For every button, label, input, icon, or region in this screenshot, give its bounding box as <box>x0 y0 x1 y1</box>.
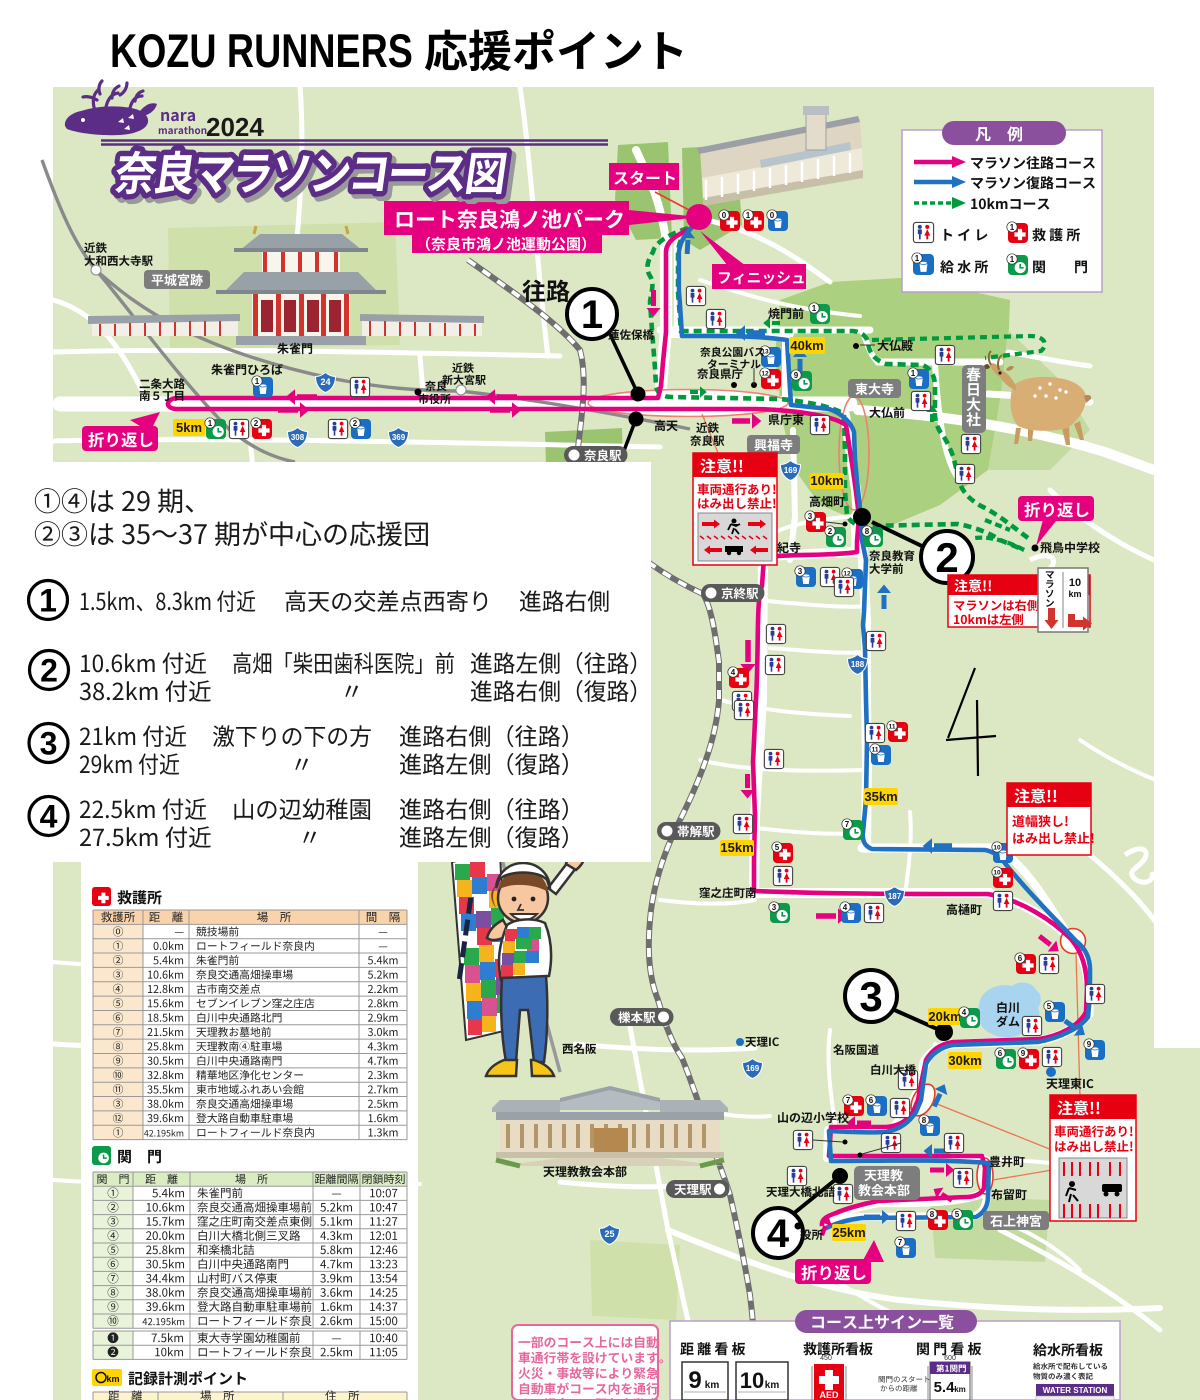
svg-text:10: 10 <box>993 844 1001 851</box>
svg-text:km: km <box>1068 589 1081 599</box>
svg-text:0: 0 <box>722 211 727 220</box>
svg-text:1: 1 <box>1010 223 1015 232</box>
svg-text:1: 1 <box>208 419 213 428</box>
svg-text:20km: 20km <box>928 1009 961 1024</box>
svg-text:25: 25 <box>604 1229 614 1239</box>
svg-text:3: 3 <box>808 512 813 521</box>
svg-text:8: 8 <box>865 527 870 536</box>
svg-text:1: 1 <box>39 582 57 618</box>
svg-text:169: 169 <box>746 1064 760 1073</box>
svg-text:1: 1 <box>581 293 603 337</box>
svg-text:8: 8 <box>930 1210 935 1219</box>
svg-text:2: 2 <box>353 419 358 428</box>
svg-text:km: km <box>106 1374 119 1384</box>
svg-text:2: 2 <box>828 527 833 536</box>
svg-text:9: 9 <box>688 1367 701 1394</box>
svg-text:24: 24 <box>320 377 330 387</box>
svg-text:2024: 2024 <box>206 112 264 142</box>
svg-text:369: 369 <box>392 433 406 442</box>
svg-text:600: 600 <box>944 1355 956 1362</box>
svg-text:4: 4 <box>962 1008 967 1017</box>
svg-text:1: 1 <box>255 377 260 386</box>
svg-text:KOZU RUNNERS: KOZU RUNNERS <box>110 25 413 78</box>
svg-text:5.4: 5.4 <box>934 1379 956 1396</box>
svg-text:10km: 10km <box>810 473 843 488</box>
svg-text:11: 11 <box>872 746 879 753</box>
svg-text:2: 2 <box>254 419 259 428</box>
svg-text:5: 5 <box>775 843 780 852</box>
svg-text:4: 4 <box>767 1212 790 1256</box>
svg-text:2: 2 <box>935 534 958 581</box>
svg-text:6: 6 <box>869 1096 874 1105</box>
svg-text:40km: 40km <box>790 338 823 353</box>
svg-text:km: km <box>954 1385 966 1394</box>
svg-text:10: 10 <box>740 1368 764 1393</box>
svg-text:0: 0 <box>770 211 775 220</box>
svg-text:km: km <box>705 1380 720 1391</box>
svg-text:308: 308 <box>291 433 305 442</box>
svg-text:3: 3 <box>40 725 58 761</box>
svg-text:35km: 35km <box>864 789 897 804</box>
svg-text:187: 187 <box>888 892 902 901</box>
svg-text:169: 169 <box>784 466 798 475</box>
svg-text:1: 1 <box>812 304 817 313</box>
svg-text:8: 8 <box>922 1116 927 1125</box>
svg-text:5: 5 <box>955 1210 960 1219</box>
svg-text:15km: 15km <box>720 840 753 855</box>
svg-text:1: 1 <box>746 211 751 220</box>
svg-text:3: 3 <box>859 973 882 1020</box>
svg-text:7: 7 <box>898 1238 903 1247</box>
svg-text:188: 188 <box>851 660 865 669</box>
svg-text:3: 3 <box>798 567 803 576</box>
svg-text:WATER STATION: WATER STATION <box>1043 1386 1108 1395</box>
svg-text:6: 6 <box>1018 954 1023 963</box>
svg-text:4: 4 <box>40 798 58 834</box>
svg-text:450: 450 <box>820 1355 832 1362</box>
svg-text:3: 3 <box>772 903 777 912</box>
svg-text:2: 2 <box>40 652 58 688</box>
svg-text:25km: 25km <box>832 1225 865 1240</box>
svg-text:10: 10 <box>993 869 1001 876</box>
svg-text:AED: AED <box>819 1390 839 1400</box>
svg-text:30km: 30km <box>948 1053 981 1068</box>
svg-text:9: 9 <box>1021 1049 1026 1058</box>
svg-text:1: 1 <box>911 369 916 378</box>
svg-text:4: 4 <box>731 668 736 677</box>
svg-text:4: 4 <box>843 903 848 912</box>
svg-text:11: 11 <box>889 723 896 730</box>
svg-text:5: 5 <box>1047 1002 1052 1011</box>
svg-text:9: 9 <box>794 371 799 380</box>
svg-text:6: 6 <box>998 1049 1003 1058</box>
svg-text:1: 1 <box>1010 255 1015 264</box>
svg-text:7: 7 <box>845 820 850 829</box>
svg-text:5km: 5km <box>176 420 202 435</box>
svg-text:km: km <box>765 1380 780 1391</box>
svg-text:12: 12 <box>761 370 769 377</box>
svg-text:10: 10 <box>1069 577 1081 589</box>
svg-text:1: 1 <box>915 254 920 263</box>
svg-text:7: 7 <box>846 1096 851 1105</box>
svg-text:12: 12 <box>843 570 851 577</box>
svg-text:9: 9 <box>1087 1040 1092 1049</box>
